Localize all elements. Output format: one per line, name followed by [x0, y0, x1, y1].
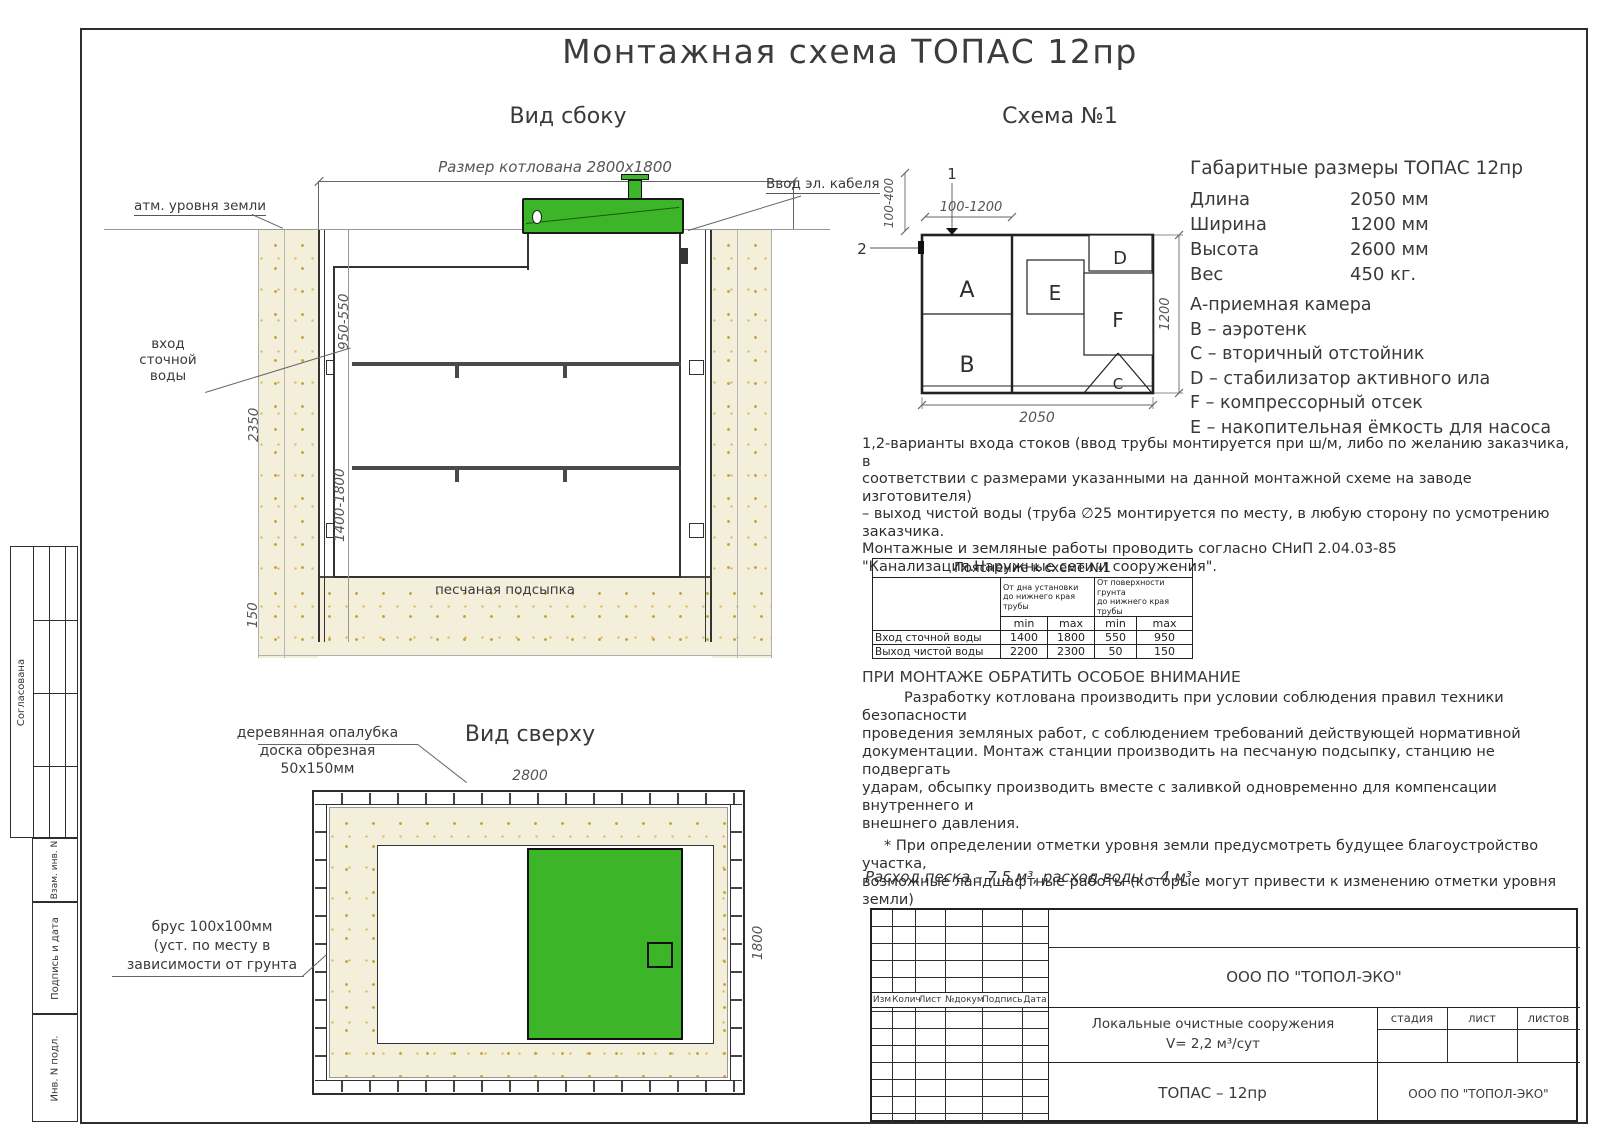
- stamp-grid-hline: [33, 620, 77, 621]
- vent-pipe: [628, 180, 642, 199]
- sand-bedding-label: песчаная подсыпка: [380, 582, 630, 598]
- spec-label: Ширина: [1190, 212, 1350, 237]
- pit-dimension-label: Размер котлована 2800х1800: [320, 158, 790, 176]
- tank-shelf: [352, 466, 681, 470]
- tb-stage-label: стадия: [1377, 1011, 1447, 1025]
- shelf-tick: [563, 470, 567, 482]
- col-max: max: [1048, 617, 1095, 631]
- table-row: От дна установки до нижнего края трубы О…: [873, 578, 1193, 617]
- legend-item: А-приемная камера: [1190, 293, 1590, 318]
- dim-extension: [318, 181, 319, 229]
- scheme-plan: A B E D F C 100-1200 1 100-400 2 1200: [845, 165, 1190, 425]
- pipe-table-group2: От поверхности грунта до нижнего края тр…: [1095, 578, 1193, 617]
- plan-dim-top: 100-1200: [940, 200, 1003, 215]
- spec-label: Длина: [1190, 187, 1350, 212]
- wall-board-line: [284, 230, 285, 658]
- scheme-heading: Схема №1: [955, 104, 1165, 129]
- spec-row: Длина 2050 мм: [1190, 187, 1580, 212]
- spec-label: Высота: [1190, 237, 1350, 262]
- plan-label-b: B: [959, 353, 974, 378]
- plank-band-bottom: [315, 1080, 742, 1092]
- notes-paragraph: 1,2-варианты входа стоков (ввод трубы мо…: [862, 436, 1572, 576]
- spec-label: Вес: [1190, 262, 1350, 287]
- spec-row: Высота 2600 мм: [1190, 237, 1580, 262]
- tb-col-dokum: №докум: [945, 993, 982, 1007]
- wall-board-line: [737, 230, 738, 658]
- stamp-podpis-box: Подпись и дата: [32, 902, 78, 1014]
- cell: 950: [1137, 631, 1193, 645]
- formwork-clip: [689, 360, 704, 375]
- plank-band-top: [315, 793, 742, 805]
- legend-item: В – аэротенк: [1190, 318, 1590, 343]
- pipe-table: Пояснение к схеме №1 От дна установки до…: [872, 558, 1193, 659]
- lid-hatch-square: [647, 942, 673, 968]
- row-label: Вход сточной воды: [873, 631, 1001, 645]
- tb-hline: [1048, 947, 1580, 948]
- formwork-left: [318, 230, 325, 642]
- plan-dim-bottom: 2050: [1019, 410, 1055, 425]
- inlet-label: вход сточной воды: [118, 336, 218, 384]
- tb-sheets-label: листов: [1517, 1011, 1580, 1025]
- tb-hline: [1048, 1007, 1580, 1008]
- cell: 1800: [1048, 631, 1095, 645]
- plan-label-d: D: [1113, 248, 1127, 269]
- formwork-label: деревянная опалубка доска обрезная 50х15…: [215, 724, 420, 778]
- plan-label-f: F: [1112, 308, 1124, 332]
- top-view-plan: [312, 790, 745, 1095]
- table-row: Пояснение к схеме №1: [873, 559, 1193, 578]
- cell: 2200: [1001, 645, 1048, 659]
- stamp-approved-label-wrap: Согласована: [11, 547, 33, 837]
- dim-total-depth: 2350: [246, 408, 262, 442]
- tb-header-row: Изм Колич Лист №докум Подпись Дата: [872, 992, 1048, 1008]
- pipe-table-caption: Пояснение к схеме №1: [873, 559, 1193, 578]
- stamp-grid-hline: [33, 693, 77, 694]
- plan-dim-left: 100-400: [882, 178, 896, 229]
- drawing-sheet: Согласована Взам. инв. N Подпись и дата …: [0, 0, 1600, 1140]
- plan-label-e: E: [1049, 281, 1062, 305]
- dim-inlet-range: 1400-1800: [332, 468, 348, 542]
- cell: 150: [1137, 645, 1193, 659]
- tb-col-izm: Изм: [872, 993, 892, 1007]
- shelf-tick: [563, 366, 567, 378]
- tb-col-data: Дата: [1022, 993, 1048, 1007]
- tank-neck: [527, 232, 681, 270]
- cable-entry-stub: [681, 248, 688, 264]
- tb-hline: [1048, 1062, 1580, 1063]
- tb-hline: [1377, 1029, 1580, 1030]
- dim-depth-upper: 950-550: [336, 294, 352, 350]
- table-row: min max min max: [873, 617, 1193, 631]
- stamp-grid-vline: [65, 547, 66, 837]
- plank-band-left: [315, 805, 327, 1080]
- tank-lid: [522, 198, 684, 234]
- row-label: Выход чистой воды: [873, 645, 1001, 659]
- formwork-clip: [689, 523, 704, 538]
- spec-value: 2600 мм: [1350, 237, 1429, 262]
- cell: 2300: [1048, 645, 1095, 659]
- tb-sheet-label: лист: [1447, 1011, 1517, 1025]
- top-view-lid: [527, 848, 683, 1040]
- cell: 50: [1095, 645, 1137, 659]
- stamp-inv-box: Инв. N подл.: [32, 1014, 78, 1122]
- timber-label: брус 100х100мм (уст. по месту в зависимо…: [118, 918, 306, 975]
- shelf-tick: [455, 366, 459, 378]
- marker2-stub: [918, 241, 924, 254]
- plan-marker-1: 1: [947, 165, 957, 183]
- table-row: Вход сточной воды 1400 1800 550 950: [873, 631, 1193, 645]
- stamp-grid-hline: [33, 766, 77, 767]
- tb-product: ТОПАС – 12пр: [1048, 1084, 1377, 1102]
- tb-col-list: Лист: [915, 993, 945, 1007]
- specs-block: Габаритные размеры ТОПАС 12пр Длина 2050…: [1190, 158, 1580, 287]
- tb-vline: [982, 910, 983, 1124]
- tb-col-podpis: Подпись: [982, 993, 1022, 1007]
- spec-value: 2050 мм: [1350, 187, 1429, 212]
- formwork-right: [705, 230, 712, 642]
- dim-bedding: 150: [245, 602, 261, 628]
- col-max: max: [1137, 617, 1193, 631]
- pipe-table-corner2: [873, 617, 1001, 631]
- cell: 1400: [1001, 631, 1048, 645]
- stamp-approved-label: Согласована: [17, 658, 28, 725]
- title-block: Изм Колич Лист №докум Подпись Дата ООО П…: [870, 908, 1578, 1122]
- stamp-grid-vline: [49, 547, 50, 837]
- pipe-table-corner: [873, 578, 1001, 617]
- table-row: Выход чистой воды 2200 2300 50 150: [873, 645, 1193, 659]
- cell: 550: [1095, 631, 1137, 645]
- pipe-table-group1: От дна установки до нижнего края трубы: [1001, 578, 1095, 617]
- plan-label-a: A: [959, 278, 974, 303]
- timber-underline: [112, 976, 304, 977]
- top-view-dim-right: 1800: [750, 926, 766, 960]
- col-min: min: [1095, 617, 1137, 631]
- side-view-heading: Вид сбоку: [468, 104, 668, 129]
- tank-shelf: [352, 362, 681, 366]
- stamp-podpis-label: Подпись и дата: [50, 917, 61, 1000]
- top-view-heading: Вид сверху: [430, 722, 630, 747]
- plank-band-right: [730, 805, 742, 1080]
- consumption-note: Расход песка – 7,5 м³, расход воды – 4 м…: [865, 868, 1192, 886]
- legend-item: D – стабилизатор активного ила: [1190, 367, 1590, 392]
- specs-heading: Габаритные размеры ТОПАС 12пр: [1190, 158, 1580, 179]
- ground-level-label: атм. уровня земли: [134, 198, 266, 214]
- tb-col-kolich: Колич: [892, 993, 915, 1007]
- stamp-approved-box: Согласована: [10, 546, 78, 838]
- dim-line-inner: [348, 230, 349, 642]
- tb-project: Локальные очистные сооружения: [1052, 1016, 1374, 1032]
- top-view-dim-top: 2800: [478, 768, 582, 784]
- lid-seam-line: [526, 207, 679, 224]
- plan-label-c: C: [1113, 375, 1123, 393]
- attention-heading: ПРИ МОНТАЖЕ ОБРАТИТЬ ОСОБОЕ ВНИМАНИЕ: [862, 668, 1576, 686]
- lid-latch: [532, 210, 542, 224]
- stamp-grid-vline: [33, 547, 34, 837]
- tb-company: ООО ПО "ТОПОЛ-ЭКО": [1048, 968, 1580, 986]
- formwork-underline: [258, 744, 418, 745]
- legend-block: А-приемная камера В – аэротенк С – втори…: [1190, 293, 1590, 440]
- spec-row: Вес 450 кг.: [1190, 262, 1580, 287]
- spec-row: Ширина 1200 мм: [1190, 212, 1580, 237]
- pit-dimension-line: [318, 181, 794, 182]
- plan-dim-right: 1200: [1158, 297, 1173, 330]
- legend-item: С – вторичный отстойник: [1190, 342, 1590, 367]
- page-title: Монтажная схема ТОПАС 12пр: [350, 32, 1350, 71]
- legend-item: F – компрессорный отсек: [1190, 391, 1590, 416]
- plan-marker-2: 2: [857, 240, 867, 258]
- tb-vline: [945, 910, 946, 1124]
- col-min: min: [1001, 617, 1048, 631]
- tb-vline: [1022, 910, 1023, 1124]
- spec-value: 450 кг.: [1350, 262, 1416, 287]
- tb-vline: [915, 910, 916, 1124]
- stamp-inv-label: Инв. N подл.: [50, 1035, 61, 1101]
- attention-body: Разработку котлована производить при усл…: [862, 689, 1576, 833]
- spec-value: 1200 мм: [1350, 212, 1429, 237]
- tank-body: [333, 266, 681, 578]
- stamp-vzam-label: Взам. инв. N: [50, 841, 60, 899]
- tb-vline: [892, 910, 893, 1124]
- shelf-tick: [455, 470, 459, 482]
- tb-volume: V= 2,2 м³/сут: [1052, 1036, 1374, 1052]
- tb-company-2: ООО ПО "ТОПОЛ-ЭКО": [1377, 1087, 1580, 1101]
- stamp-vzam-box: Взам. инв. N: [32, 838, 78, 902]
